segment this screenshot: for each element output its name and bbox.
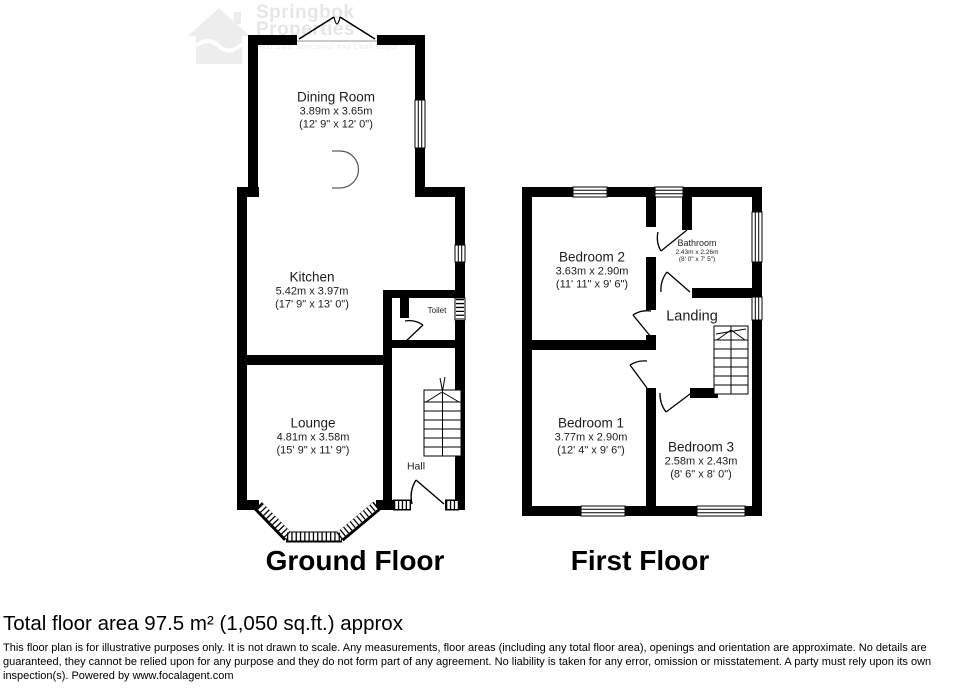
bedroom3-name: Bedroom 3 — [665, 440, 738, 456]
dining-room-imperial: (12' 9" x 12' 0") — [297, 119, 375, 132]
bedroom3-metric: 2.58m x 2.43m — [665, 456, 738, 469]
landing-label: Landing — [666, 308, 718, 325]
dining-room-metric: 3.89m x 3.65m — [297, 106, 375, 119]
toilet-door — [404, 321, 423, 343]
dining-kitchen-door-arc — [332, 151, 359, 188]
bedroom1-label: Bedroom 1 3.77m x 2.90m (12' 4" x 9' 6") — [555, 416, 628, 459]
bedroom2-imperial: (11' 11" x 9' 6") — [556, 279, 629, 292]
bathroom-metric: 2.43m x 2.26m — [676, 249, 719, 256]
bedroom2-metric: 3.63m x 2.90m — [556, 266, 629, 279]
floorplan-drawing — [0, 0, 976, 688]
lounge-label: Lounge 4.81m x 3.58m (15' 9" x 11' 9") — [277, 416, 350, 459]
bay-window — [258, 506, 377, 537]
bedroom3-imperial: (8' 6" x 8' 0") — [665, 469, 738, 482]
bedroom2-label: Bedroom 2 3.63m x 2.90m (11' 11" x 9' 6"… — [556, 250, 629, 293]
kitchen-label: Kitchen 5.42m x 3.97m (17' 9" x 13' 0") — [275, 270, 349, 313]
dining-room-label: Dining Room 3.89m x 3.65m (12' 9" x 12' … — [297, 90, 375, 133]
kitchen-metric: 5.42m x 3.97m — [275, 286, 349, 299]
first-floor-stairs — [714, 326, 748, 394]
dining-room-name: Dining Room — [297, 90, 375, 106]
lounge-name: Lounge — [277, 416, 350, 432]
patio-double-doors — [297, 17, 377, 41]
toilet-label: Toilet — [428, 306, 447, 316]
bedroom3-door — [660, 393, 690, 412]
bathroom-name: Bathroom — [676, 238, 719, 249]
lounge-metric: 4.81m x 3.58m — [277, 432, 350, 445]
bedroom2-name: Bedroom 2 — [556, 250, 629, 266]
bathroom-imperial: (8' 0" x 7' 5") — [676, 256, 719, 263]
first-floor-title: First Floor — [571, 545, 709, 577]
hall-label: Hall — [407, 461, 425, 474]
lounge-imperial: (15' 9" x 11' 9") — [277, 445, 350, 458]
bedroom1-name: Bedroom 1 — [555, 416, 628, 432]
ground-floor-title: Ground Floor — [266, 545, 445, 577]
kitchen-name: Kitchen — [275, 270, 349, 286]
kitchen-imperial: (17' 9" x 13' 0") — [275, 299, 349, 312]
bedroom3-label: Bedroom 3 2.58m x 2.43m (8' 6" x 8' 0") — [665, 440, 738, 483]
bedroom1-imperial: (12' 4" x 9' 6") — [555, 445, 628, 458]
total-floor-area: Total floor area 97.5 m² (1,050 sq.ft.) … — [3, 612, 403, 636]
bedroom1-metric: 3.77m x 2.90m — [555, 432, 628, 445]
disclaimer-text: This floor plan is for illustrative purp… — [3, 641, 974, 683]
toilet-window — [455, 298, 465, 320]
bedroom2-door — [633, 311, 651, 337]
floorplan-page: Springbok Properties Fast Sale Specialis… — [0, 0, 976, 688]
front-door — [411, 480, 444, 504]
bedroom1-door — [630, 361, 647, 388]
bathroom-label: Bathroom 2.43m x 2.26m (8' 0" x 7' 5") — [676, 238, 719, 264]
